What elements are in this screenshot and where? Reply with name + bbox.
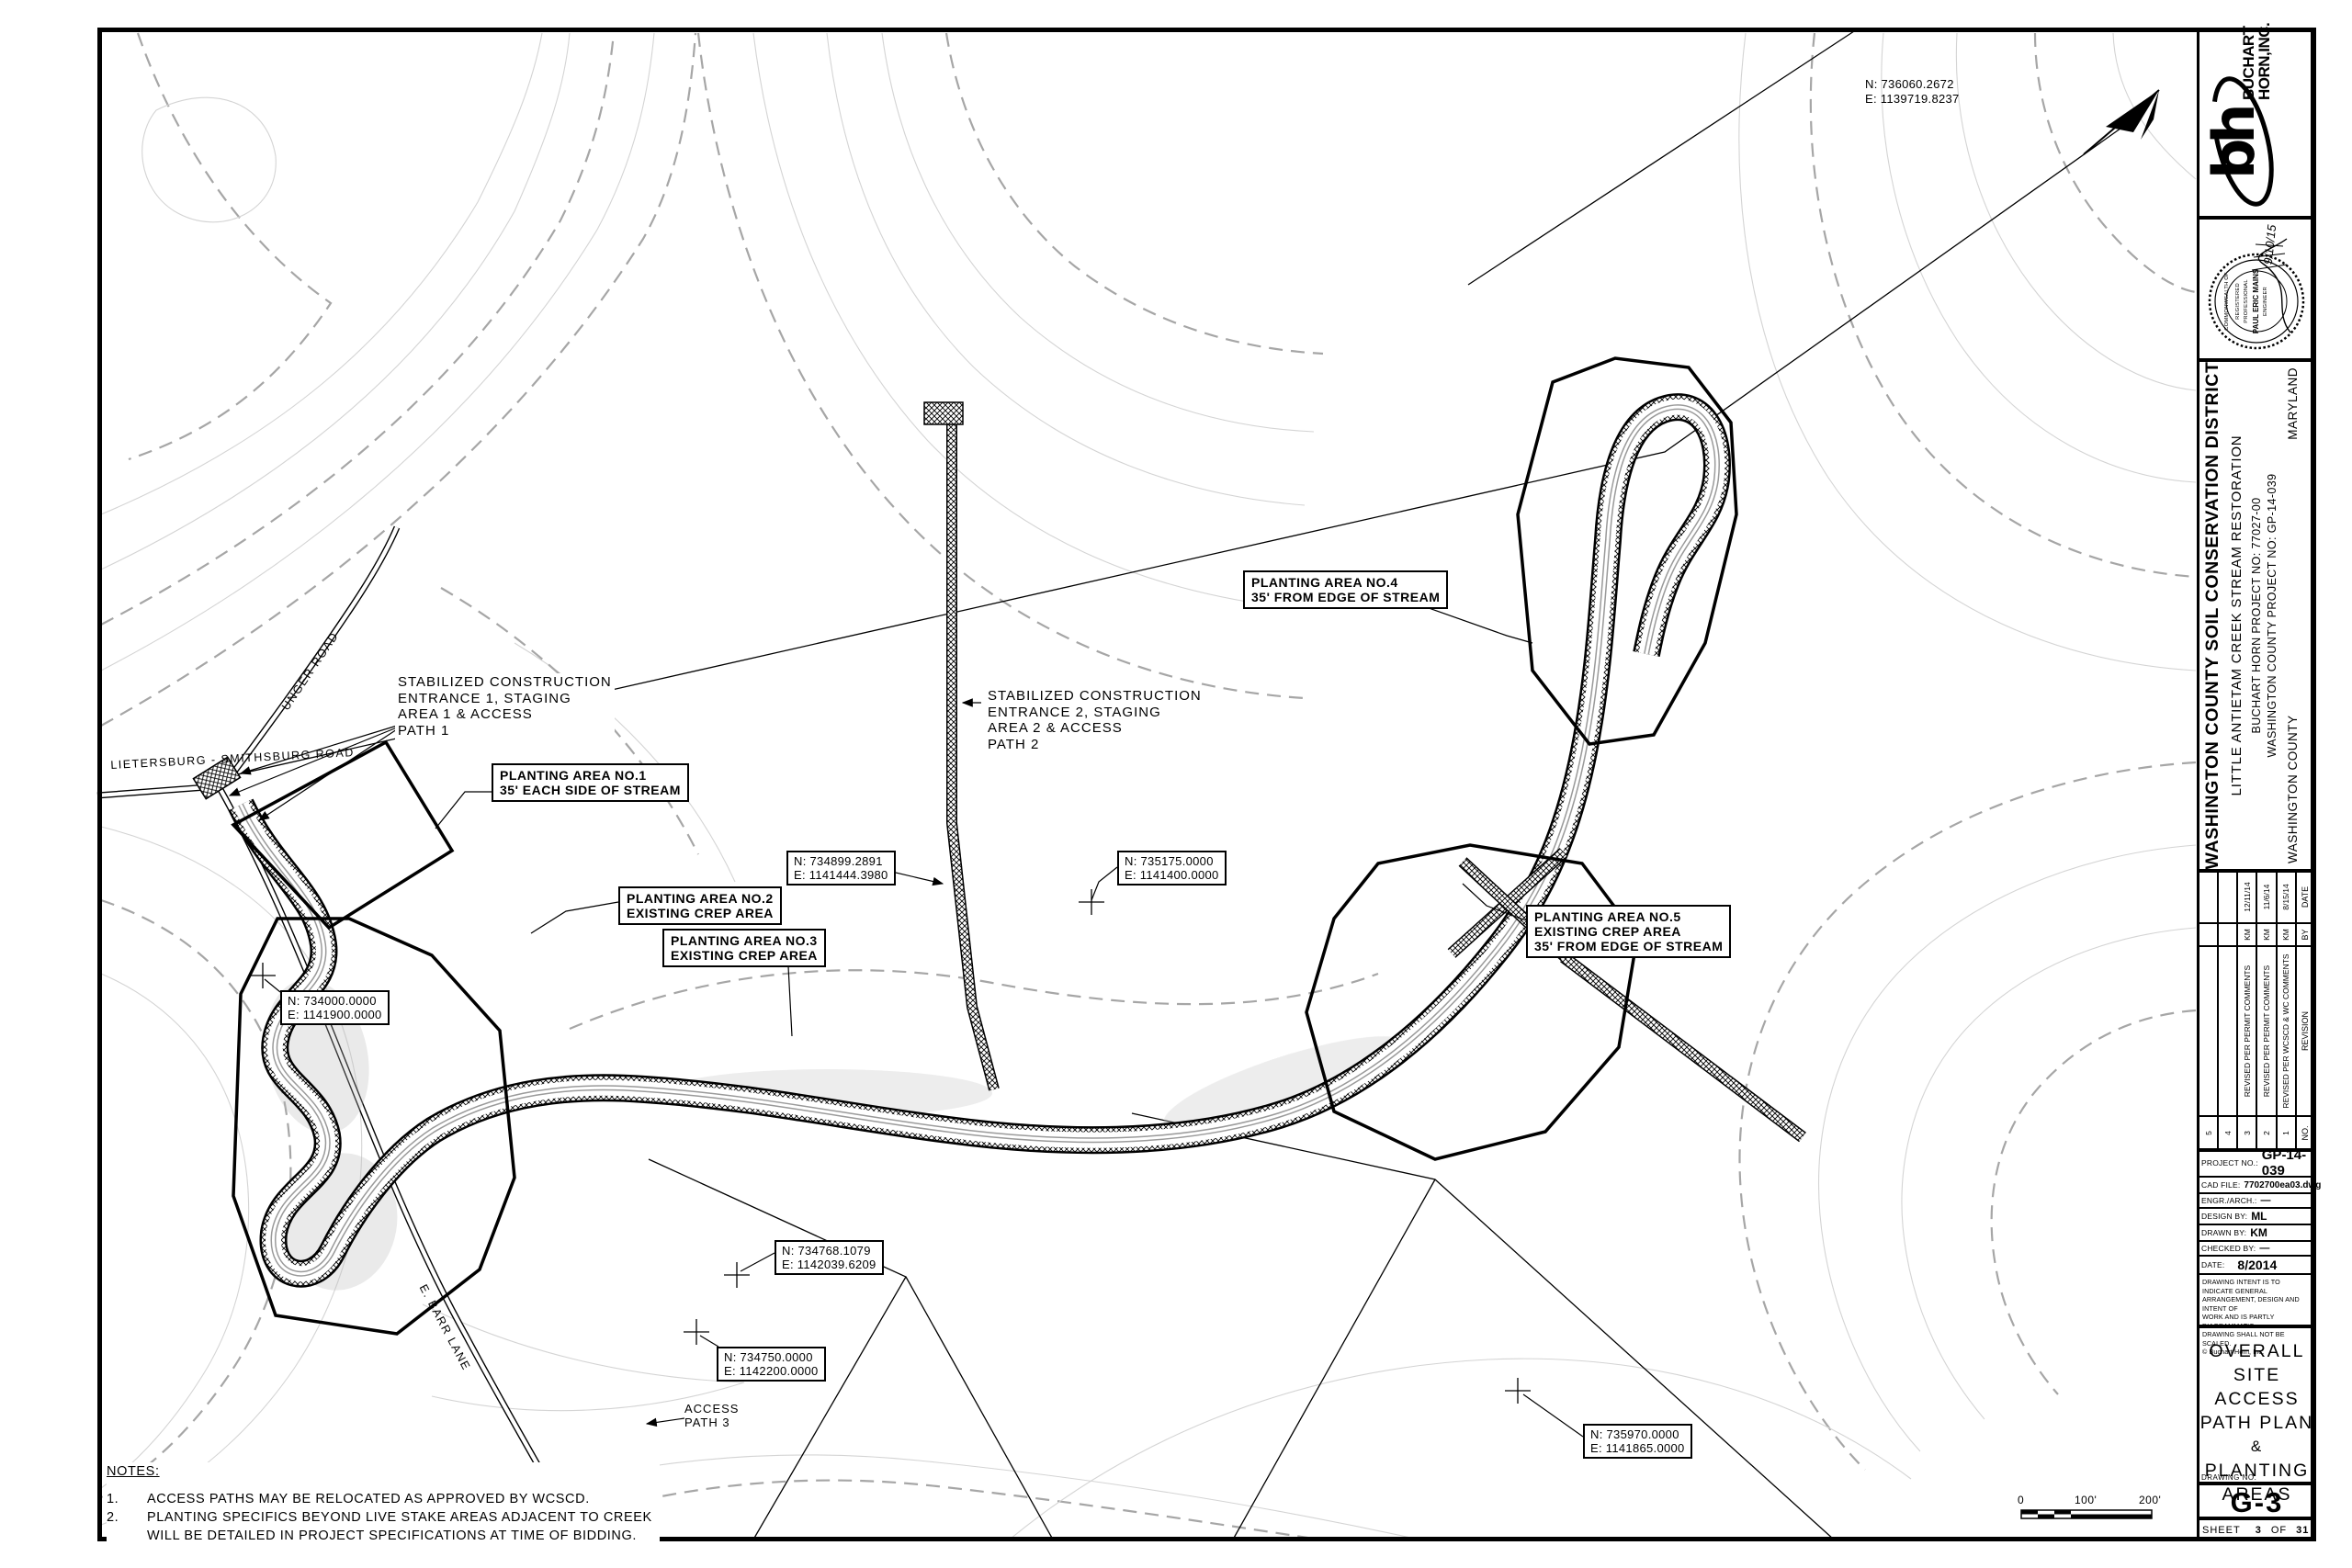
coord-label-736060: N: 736060.2672 E: 1139719.8237 xyxy=(1865,77,1960,107)
rev-text-cell: REVISED PER PERMIT COMMENTS xyxy=(2256,946,2276,1116)
callout-stabilized-entrance-2: STABILIZED CONSTRUCTION ENTRANCE 2, STAG… xyxy=(985,687,1204,753)
stamp-commonwealth: COMMONWEALTH OF xyxy=(2224,266,2230,336)
scale-zero-label: 0 xyxy=(2018,1494,2024,1506)
stamp-engineer: ENGINEER xyxy=(2263,266,2268,336)
drawn-by-value: KM xyxy=(2250,1226,2267,1239)
design-by-row: DESIGN BY: ML xyxy=(2199,1209,2315,1225)
firm-logo: bh BUCHART HORN,INC. xyxy=(2199,29,2315,218)
rev-no-cell: 1 xyxy=(2277,1116,2296,1150)
rev-header-no: NO. xyxy=(2296,1116,2315,1150)
callout-planting-area-3: PLANTING AREA NO.3 EXISTING CREP AREA xyxy=(662,929,826,967)
firm-name: BUCHART HORN,INC. xyxy=(2241,23,2272,100)
notes-block: NOTES: 1. ACCESS PATHS MAY BE RELOCATED … xyxy=(107,1462,660,1545)
engr-arch-value: — xyxy=(2261,1195,2271,1206)
coord-label-734899: N: 734899.2891 E: 1141444.3980 xyxy=(786,851,896,886)
bh-project-number: BUCHART HORN PROJECT NO: 77027-00 xyxy=(2250,360,2263,871)
county-label: WASHINGTON COUNTY xyxy=(2286,715,2300,863)
rev-header-revision: REVISION xyxy=(2296,946,2315,1116)
callout-planting-area-1: PLANTING AREA NO.1 35' EACH SIDE OF STRE… xyxy=(492,763,689,802)
scale-100-label: 100' xyxy=(2075,1494,2097,1506)
rev-date-cell xyxy=(2199,871,2218,923)
callout-planting-area-5: PLANTING AREA NO.5 EXISTING CREP AREA 35… xyxy=(1526,905,1731,958)
state-label: MARYLAND xyxy=(2286,367,2300,440)
county-project-number: WASHINGTON COUNTY PROJECT NO: GP-14-039 xyxy=(2266,360,2278,871)
rev-no-cell: 3 xyxy=(2237,1116,2256,1150)
cad-file-row: CAD FILE: 7702700ea03.dwg xyxy=(2199,1178,2315,1194)
rev-header-date: DATE xyxy=(2296,871,2315,923)
revision-table: 5 4 3 REVISED PER PERMIT COMMENTS KM 12/… xyxy=(2199,871,2315,1150)
rev-date-cell: 8/15/14 xyxy=(2277,871,2296,923)
project-no-value: GP-14-039 xyxy=(2262,1147,2312,1179)
rev-header-by: BY xyxy=(2296,923,2315,946)
coord-label-734768: N: 734768.1079 E: 1142039.6209 xyxy=(775,1240,884,1275)
rev-text-cell: REVISED PER PERMIT COMMENTS xyxy=(2237,946,2256,1116)
rev-by-cell: KM xyxy=(2256,923,2276,946)
project-title: LITTLE ANTIETAM CREEK STREAM RESTORATION xyxy=(2229,360,2245,871)
rev-by-cell: KM xyxy=(2277,923,2296,946)
drawing-no-label: DRAWING NO. xyxy=(2201,1473,2256,1482)
coord-label-734750: N: 734750.0000 E: 1142200.0000 xyxy=(717,1347,826,1382)
date-value: 8/2014 xyxy=(2237,1258,2277,1272)
coord-label-735175: N: 735175.0000 E: 1141400.0000 xyxy=(1117,851,1227,886)
rev-no-cell: 2 xyxy=(2256,1116,2276,1150)
engr-arch-row: ENGR./ARCH.: — xyxy=(2199,1194,2315,1209)
firm-monogram: bh xyxy=(2200,108,2267,179)
callout-stabilized-entrance-1: STABILIZED CONSTRUCTION ENTRANCE 1, STAG… xyxy=(395,673,615,739)
pe-stamp: COMMONWEALTH OF REGISTERED PROFESSIONAL … xyxy=(2199,218,2315,360)
sheet-total: 31 xyxy=(2296,1525,2309,1536)
design-by-value: ML xyxy=(2251,1210,2267,1223)
rev-by-cell xyxy=(2199,923,2218,946)
rev-date-cell: 11/6/14 xyxy=(2256,871,2276,923)
checked-by-value: — xyxy=(2259,1243,2269,1254)
cad-file-value: 7702700ea03.dwg xyxy=(2244,1180,2321,1190)
plan-sheet: N: 736060.2672 E: 1139719.8237 STABILIZE… xyxy=(0,0,2352,1568)
stamp-professional: PROFESSIONAL xyxy=(2244,266,2249,336)
note-item-1: 1. ACCESS PATHS MAY BE RELOCATED AS APPR… xyxy=(107,1490,652,1508)
rev-date-cell xyxy=(2218,871,2237,923)
rev-by-cell: KM xyxy=(2237,923,2256,946)
callout-planting-area-4: PLANTING AREA NO.4 35' FROM EDGE OF STRE… xyxy=(1243,570,1448,609)
rev-text-cell xyxy=(2199,946,2218,1116)
sheet-count-row: SHEET 3 OF 31 xyxy=(2199,1518,2315,1541)
coord-label-735970: N: 735970.0000 E: 1141865.0000 xyxy=(1583,1424,1692,1459)
project-no-row: PROJECT NO.: GP-14-039 xyxy=(2199,1150,2315,1178)
rev-no-cell: 5 xyxy=(2199,1116,2218,1150)
notes-title: NOTES: xyxy=(107,1462,652,1481)
rev-text-cell: REVISED PER WCSCD & WC COMMENTS xyxy=(2277,946,2296,1116)
coord-label-734000: N: 734000.0000 E: 1141900.0000 xyxy=(280,990,390,1025)
project-title-block: WASHINGTON COUNTY SOIL CONSERVATION DIST… xyxy=(2199,360,2315,871)
sheet-number: 3 xyxy=(2256,1525,2262,1536)
rev-no-cell: 4 xyxy=(2218,1116,2237,1150)
rev-date-cell: 12/11/14 xyxy=(2237,871,2256,923)
stamp-registered: REGISTERED xyxy=(2235,266,2241,336)
rev-text-cell xyxy=(2218,946,2237,1116)
rev-by-cell xyxy=(2218,923,2237,946)
drawing-no-value: G-3 xyxy=(2199,1486,2315,1519)
callout-planting-area-2: PLANTING AREA NO.2 EXISTING CREP AREA xyxy=(618,886,782,925)
drawn-by-row: DRAWN BY: KM xyxy=(2199,1225,2315,1242)
note-item-2: 2. PLANTING SPECIFICS BEYOND LIVE STAKE … xyxy=(107,1508,652,1545)
access-path-3-label: ACCESS PATH 3 xyxy=(684,1402,739,1429)
checked-by-row: CHECKED BY: — xyxy=(2199,1242,2315,1257)
district-title: WASHINGTON COUNTY SOIL CONSERVATION DIST… xyxy=(2202,360,2223,871)
date-row: DATE: 8/2014 xyxy=(2199,1257,2315,1275)
stamp-name: PAUL ERIC MAINS xyxy=(2252,259,2260,344)
scale-200-label: 200' xyxy=(2139,1494,2161,1506)
